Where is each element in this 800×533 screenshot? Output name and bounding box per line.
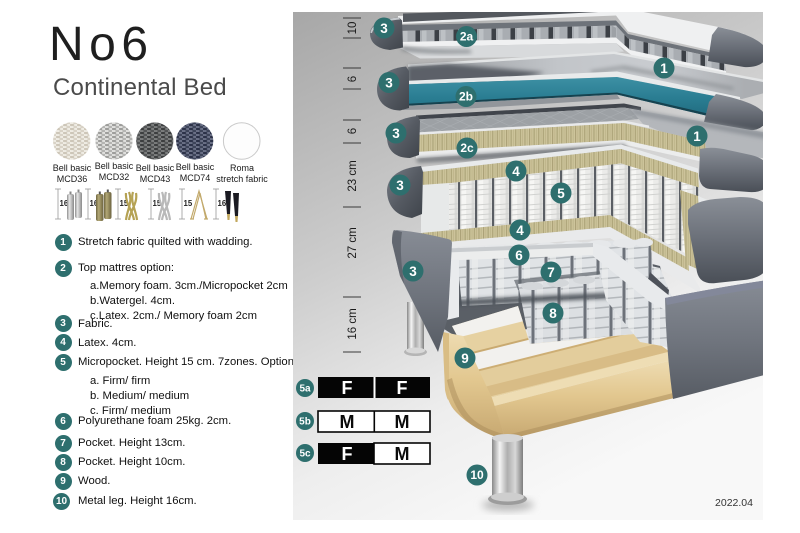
svg-text:6: 6	[347, 128, 359, 134]
svg-text:F: F	[397, 378, 408, 398]
svg-text:F: F	[342, 378, 353, 398]
svg-text:M: M	[340, 412, 355, 432]
svg-text:5b: 5b	[299, 417, 311, 428]
svg-text:3: 3	[396, 178, 404, 193]
svg-text:5a: 5a	[299, 384, 311, 395]
svg-text:10: 10	[347, 22, 359, 35]
svg-text:6: 6	[515, 248, 523, 263]
svg-text:2c: 2c	[460, 141, 474, 155]
svg-text:6: 6	[347, 76, 359, 82]
svg-text:2a: 2a	[460, 30, 474, 44]
svg-text:10: 10	[470, 468, 484, 482]
svg-text:23 cm: 23 cm	[347, 160, 359, 191]
svg-text:16: 16	[218, 199, 227, 208]
svg-text:1: 1	[693, 129, 701, 144]
svg-text:9: 9	[461, 351, 469, 366]
svg-text:3: 3	[409, 264, 417, 279]
svg-text:2b: 2b	[459, 90, 473, 104]
svg-text:4: 4	[516, 223, 524, 238]
svg-text:8: 8	[549, 306, 557, 321]
svg-text:7: 7	[547, 265, 555, 280]
svg-text:3: 3	[392, 126, 400, 141]
svg-text:1: 1	[660, 61, 668, 76]
svg-text:15: 15	[184, 199, 193, 208]
svg-text:5: 5	[557, 186, 565, 201]
svg-text:27 cm: 27 cm	[347, 227, 359, 258]
svg-text:16 cm: 16 cm	[347, 308, 359, 339]
svg-text:3: 3	[385, 75, 393, 90]
svg-text:5c: 5c	[299, 449, 311, 460]
svg-text:M: M	[395, 412, 410, 432]
svg-text:2022.04: 2022.04	[715, 497, 753, 509]
svg-text:4: 4	[512, 164, 520, 179]
svg-text:M: M	[395, 444, 410, 464]
svg-text:F: F	[342, 444, 353, 464]
svg-text:3: 3	[380, 21, 388, 36]
